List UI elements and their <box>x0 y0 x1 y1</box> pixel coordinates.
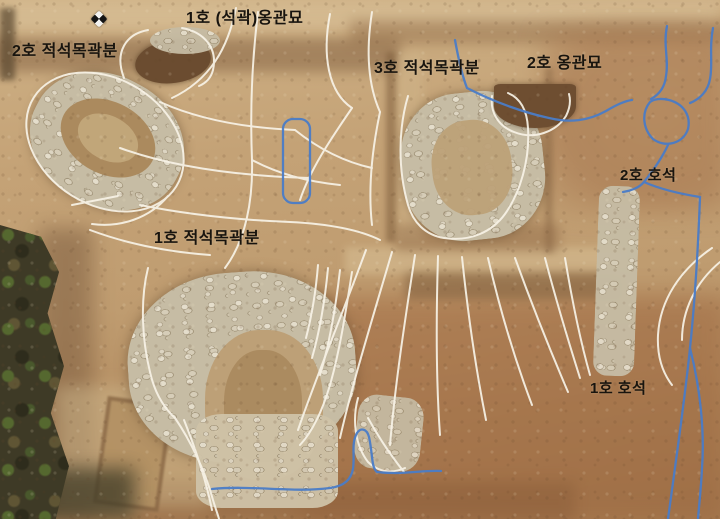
label-jar-burial-1: 1호 (석곽)옹관묘 <box>186 11 303 27</box>
label-stone-tomb-2: 2호 적석목곽분 <box>12 44 118 60</box>
label-hoseok-1: 1호 호석 <box>590 381 646 396</box>
annotation-lines-overlay <box>0 0 720 519</box>
excavation-outline-lines <box>0 8 720 519</box>
stream-boundary-lines <box>212 26 713 519</box>
label-jar-burial-2: 2호 옹관묘 <box>527 56 602 72</box>
label-stone-tomb-3: 3호 적석목곽분 <box>374 61 480 77</box>
excavation-aerial-photo: 1호 (석곽)옹관묘 2호 적석목곽분 3호 적석목곽분 2호 옹관묘 2호 호… <box>0 0 720 519</box>
label-hoseok-2: 2호 호석 <box>620 168 676 183</box>
label-stone-tomb-1: 1호 적석목곽분 <box>154 231 260 247</box>
